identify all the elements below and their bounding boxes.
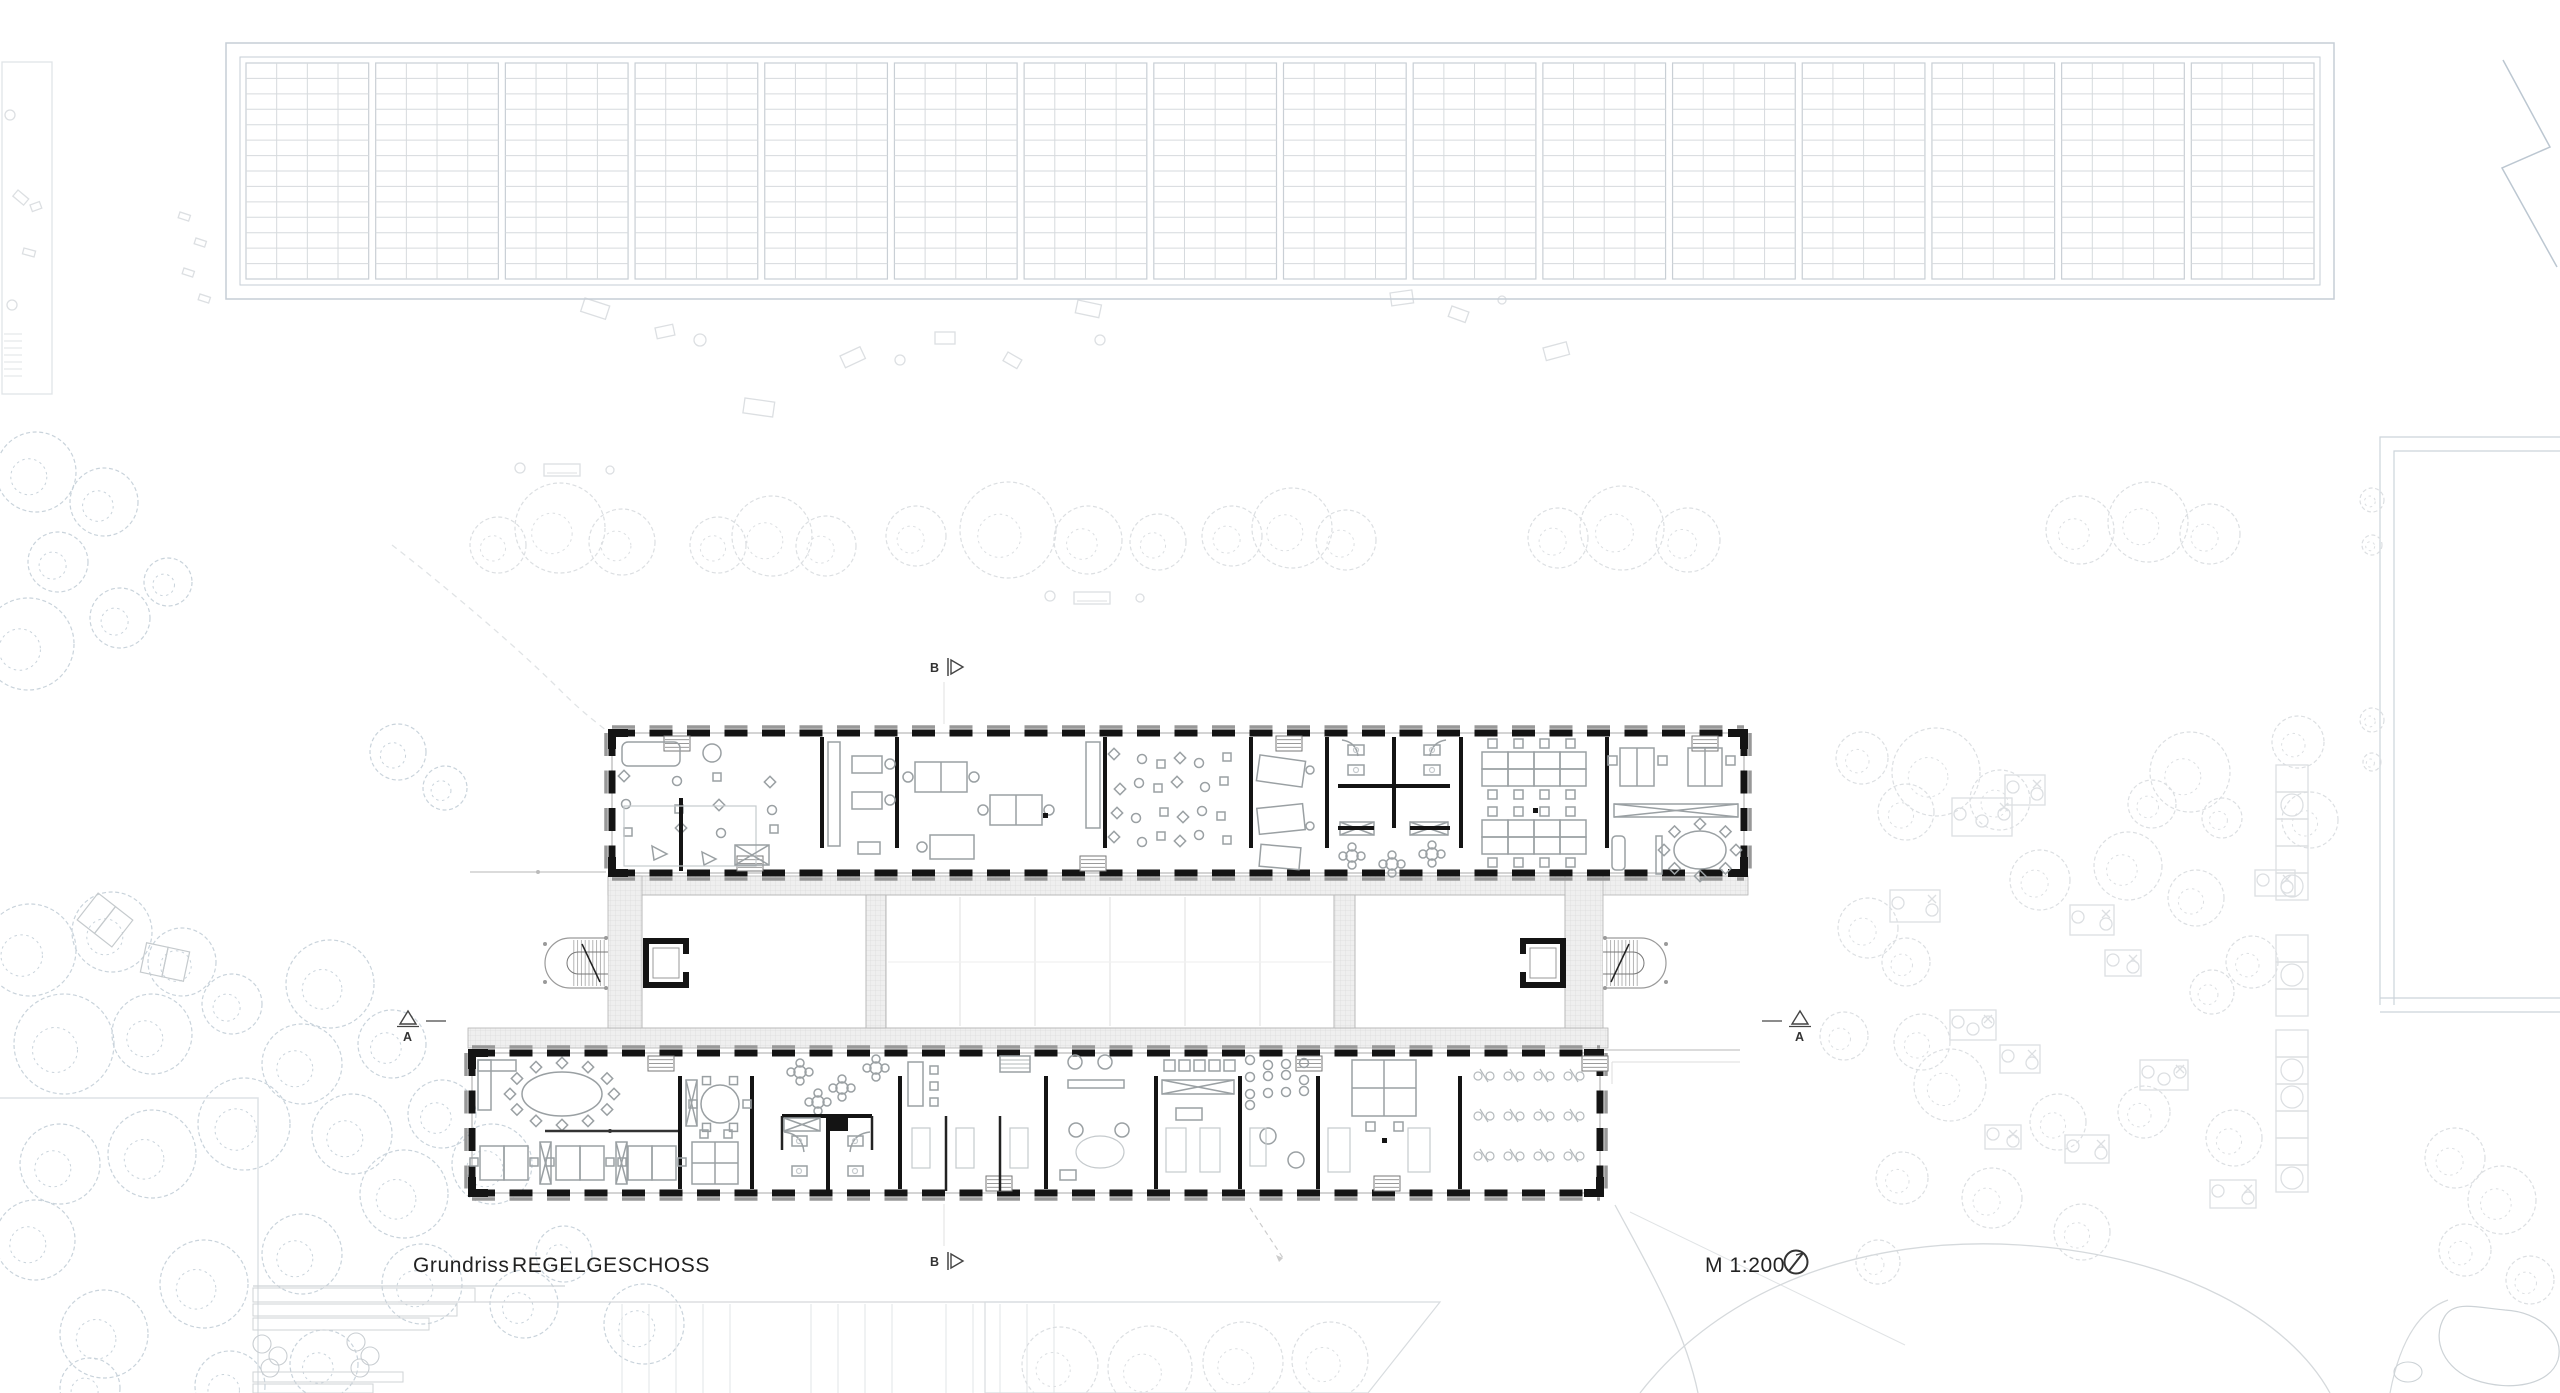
north-arrow-icon bbox=[1785, 1251, 1808, 1274]
pergola-grid-roof bbox=[226, 43, 2334, 299]
corridor-band bbox=[468, 876, 1748, 1048]
section-label-a-right: A bbox=[1795, 1030, 1804, 1044]
section-label-a-left: A bbox=[403, 1030, 412, 1044]
plan-title-value: REGELGESCHOSS bbox=[512, 1254, 710, 1277]
section-marker-b-bottom: B bbox=[930, 1204, 963, 1270]
section-marker-a-right: A bbox=[1762, 1011, 1811, 1044]
floor-plan-sheet: B B A A Grundriss REGELGESCHOSS M 1:200 bbox=[0, 0, 2560, 1393]
scale-label: M 1:200 bbox=[1705, 1254, 1785, 1277]
section-marker-b-top: B bbox=[930, 658, 963, 724]
site-plan-drawing: B B A A Grundriss REGELGESCHOSS M 1:200 bbox=[0, 0, 2560, 1393]
section-label-b-bottom: B bbox=[930, 1255, 939, 1269]
section-label-b-top: B bbox=[930, 661, 939, 675]
plan-title: Grundriss bbox=[413, 1254, 509, 1277]
section-marker-a-left: A bbox=[397, 1011, 446, 1044]
